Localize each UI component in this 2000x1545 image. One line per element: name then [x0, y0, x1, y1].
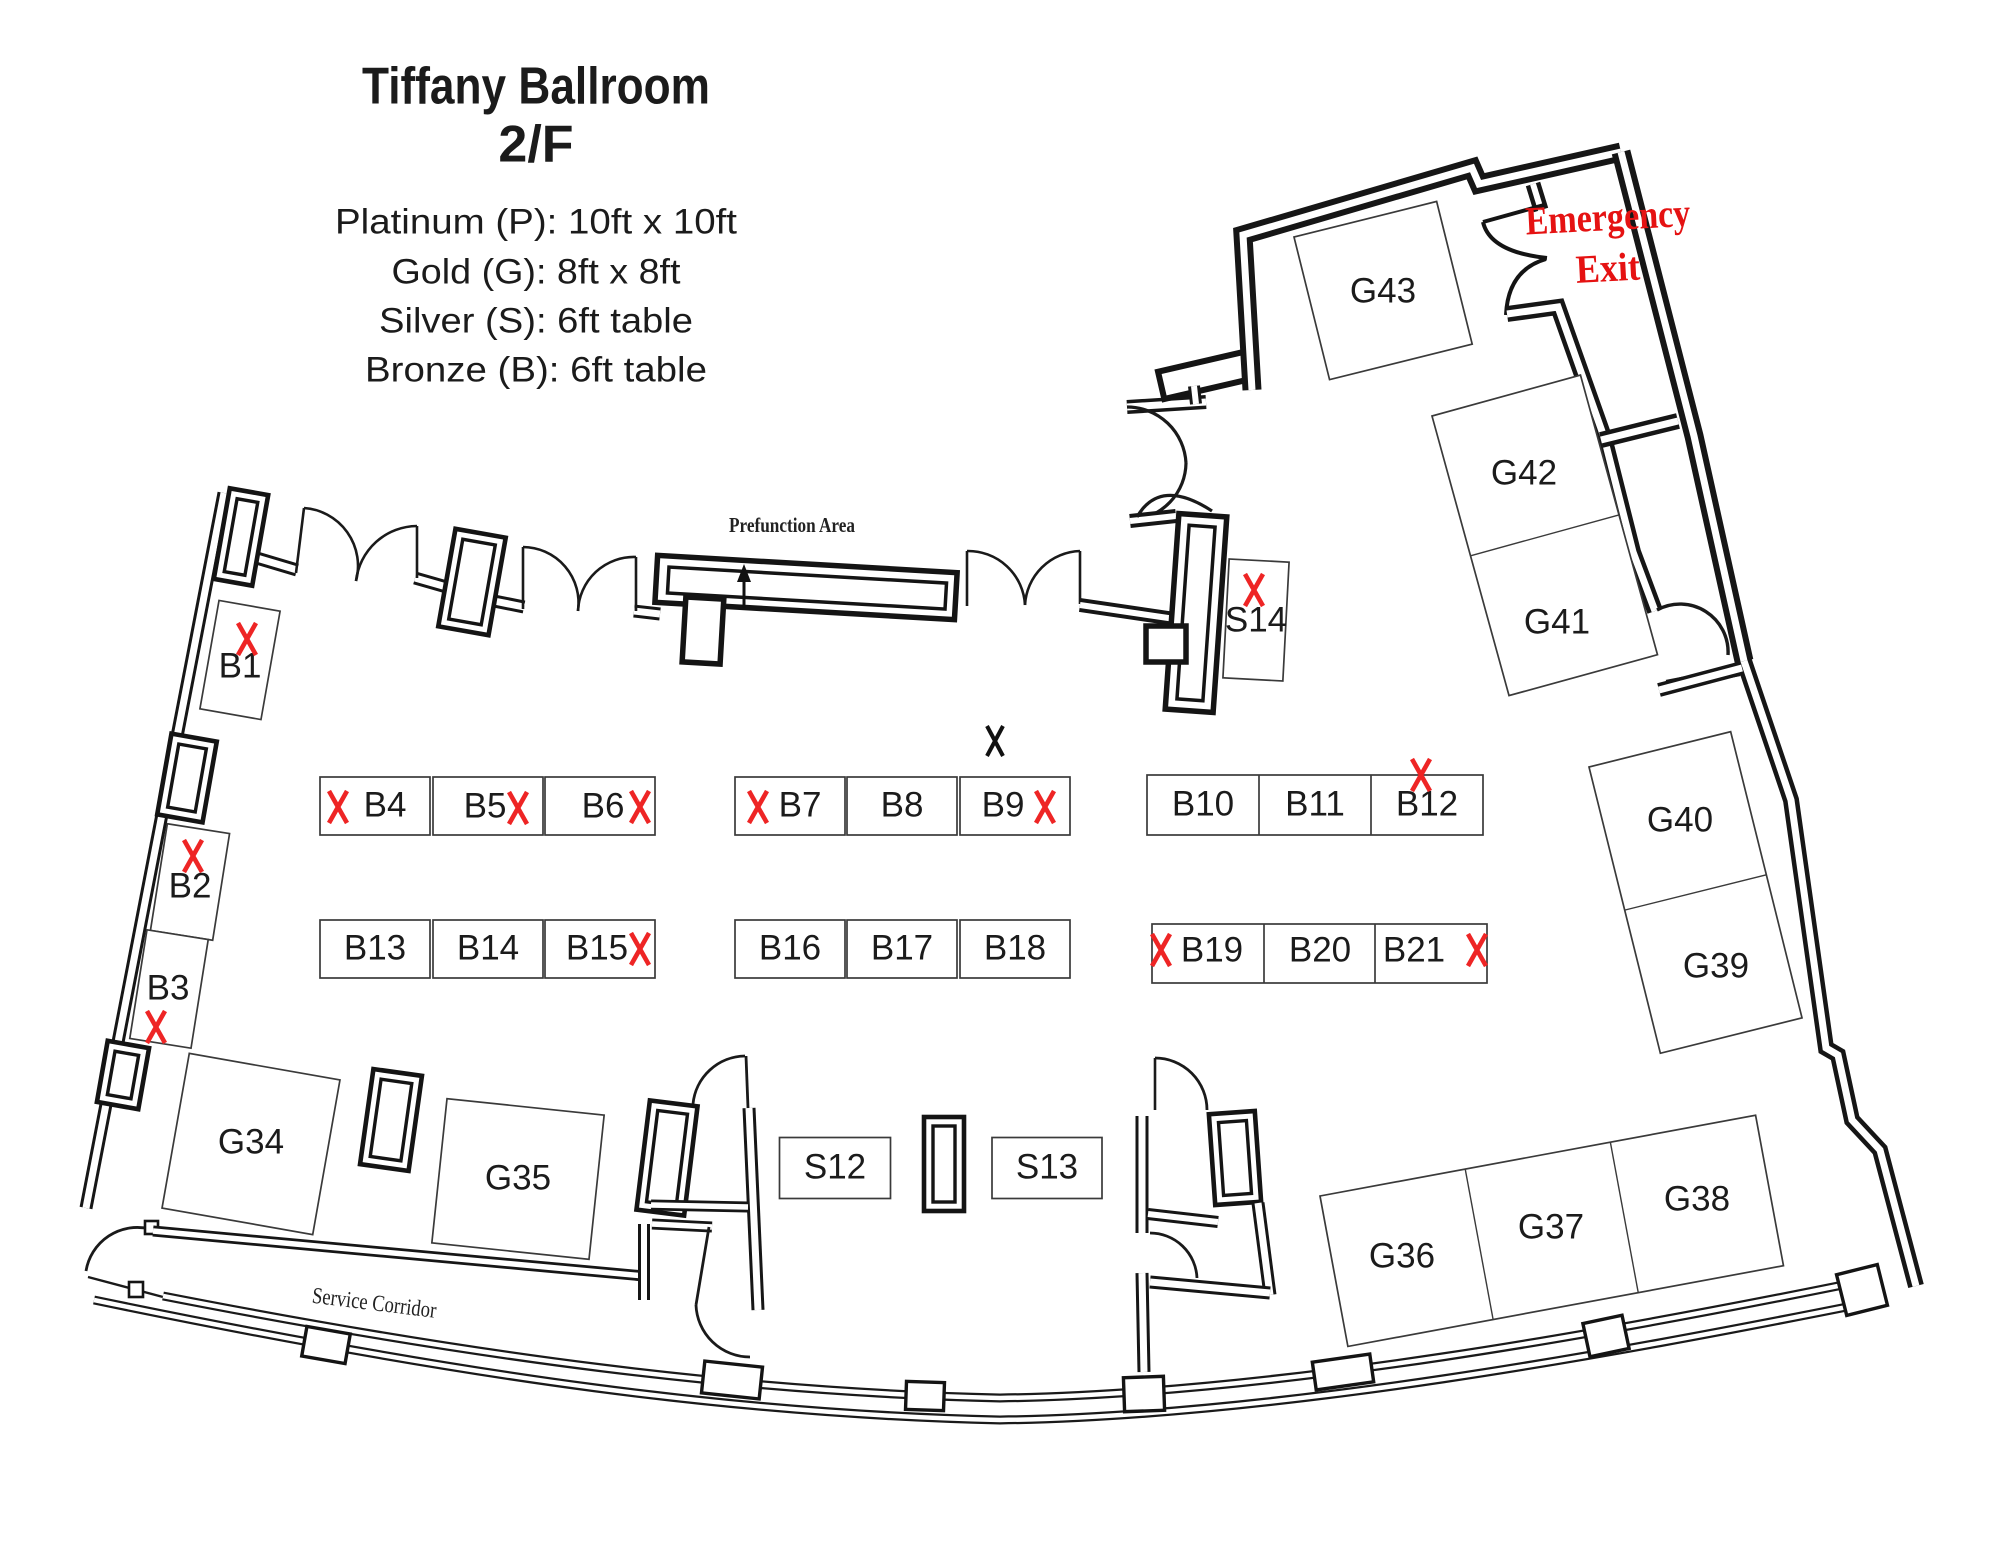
svg-text:Prefunction Area: Prefunction Area: [729, 513, 855, 537]
svg-text:B18: B18: [984, 928, 1046, 967]
svg-text:B8: B8: [881, 785, 924, 824]
svg-text:G39: G39: [1683, 946, 1749, 985]
svg-text:G38: G38: [1664, 1179, 1730, 1218]
svg-text:Gold (G): 8ft x 8ft: Gold (G): 8ft x 8ft: [392, 252, 681, 291]
svg-text:Exit: Exit: [1575, 244, 1642, 292]
svg-text:B3: B3: [147, 968, 190, 1007]
svg-text:B17: B17: [871, 928, 933, 967]
svg-text:S12: S12: [804, 1147, 866, 1186]
svg-text:B15: B15: [566, 928, 628, 967]
svg-text:S13: S13: [1016, 1147, 1078, 1186]
svg-text:B6: B6: [582, 786, 625, 825]
svg-text:Bronze (B): 6ft table: Bronze (B): 6ft table: [365, 350, 707, 389]
svg-text:S14: S14: [1225, 600, 1287, 639]
svg-text:B7: B7: [779, 785, 822, 824]
svg-text:B9: B9: [982, 785, 1025, 824]
svg-text:G43: G43: [1350, 271, 1416, 310]
svg-text:G41: G41: [1524, 602, 1590, 641]
svg-text:G34: G34: [218, 1122, 284, 1161]
svg-text:Emergency: Emergency: [1524, 190, 1691, 244]
svg-text:B4: B4: [364, 785, 407, 824]
svg-text:B16: B16: [759, 928, 821, 967]
svg-text:Platinum (P): 10ft x 10ft: Platinum (P): 10ft x 10ft: [335, 202, 737, 241]
svg-text:B20: B20: [1289, 930, 1351, 969]
svg-text:G35: G35: [485, 1158, 551, 1197]
svg-text:G40: G40: [1647, 800, 1713, 839]
svg-text:B21: B21: [1383, 930, 1445, 969]
svg-text:Silver (S): 6ft table: Silver (S): 6ft table: [379, 301, 693, 340]
svg-text:G42: G42: [1491, 453, 1557, 492]
svg-text:2/F: 2/F: [498, 116, 573, 174]
svg-text:B10: B10: [1172, 784, 1234, 823]
svg-text:B11: B11: [1285, 784, 1345, 823]
svg-text:B13: B13: [344, 928, 406, 967]
svg-text:G36: G36: [1369, 1236, 1435, 1275]
svg-text:B2: B2: [169, 866, 212, 905]
svg-text:Tiffany Ballroom: Tiffany Ballroom: [362, 58, 710, 116]
svg-text:B5: B5: [464, 786, 507, 825]
svg-text:B19: B19: [1181, 930, 1243, 969]
svg-text:G37: G37: [1518, 1207, 1584, 1246]
svg-text:B14: B14: [457, 928, 519, 967]
